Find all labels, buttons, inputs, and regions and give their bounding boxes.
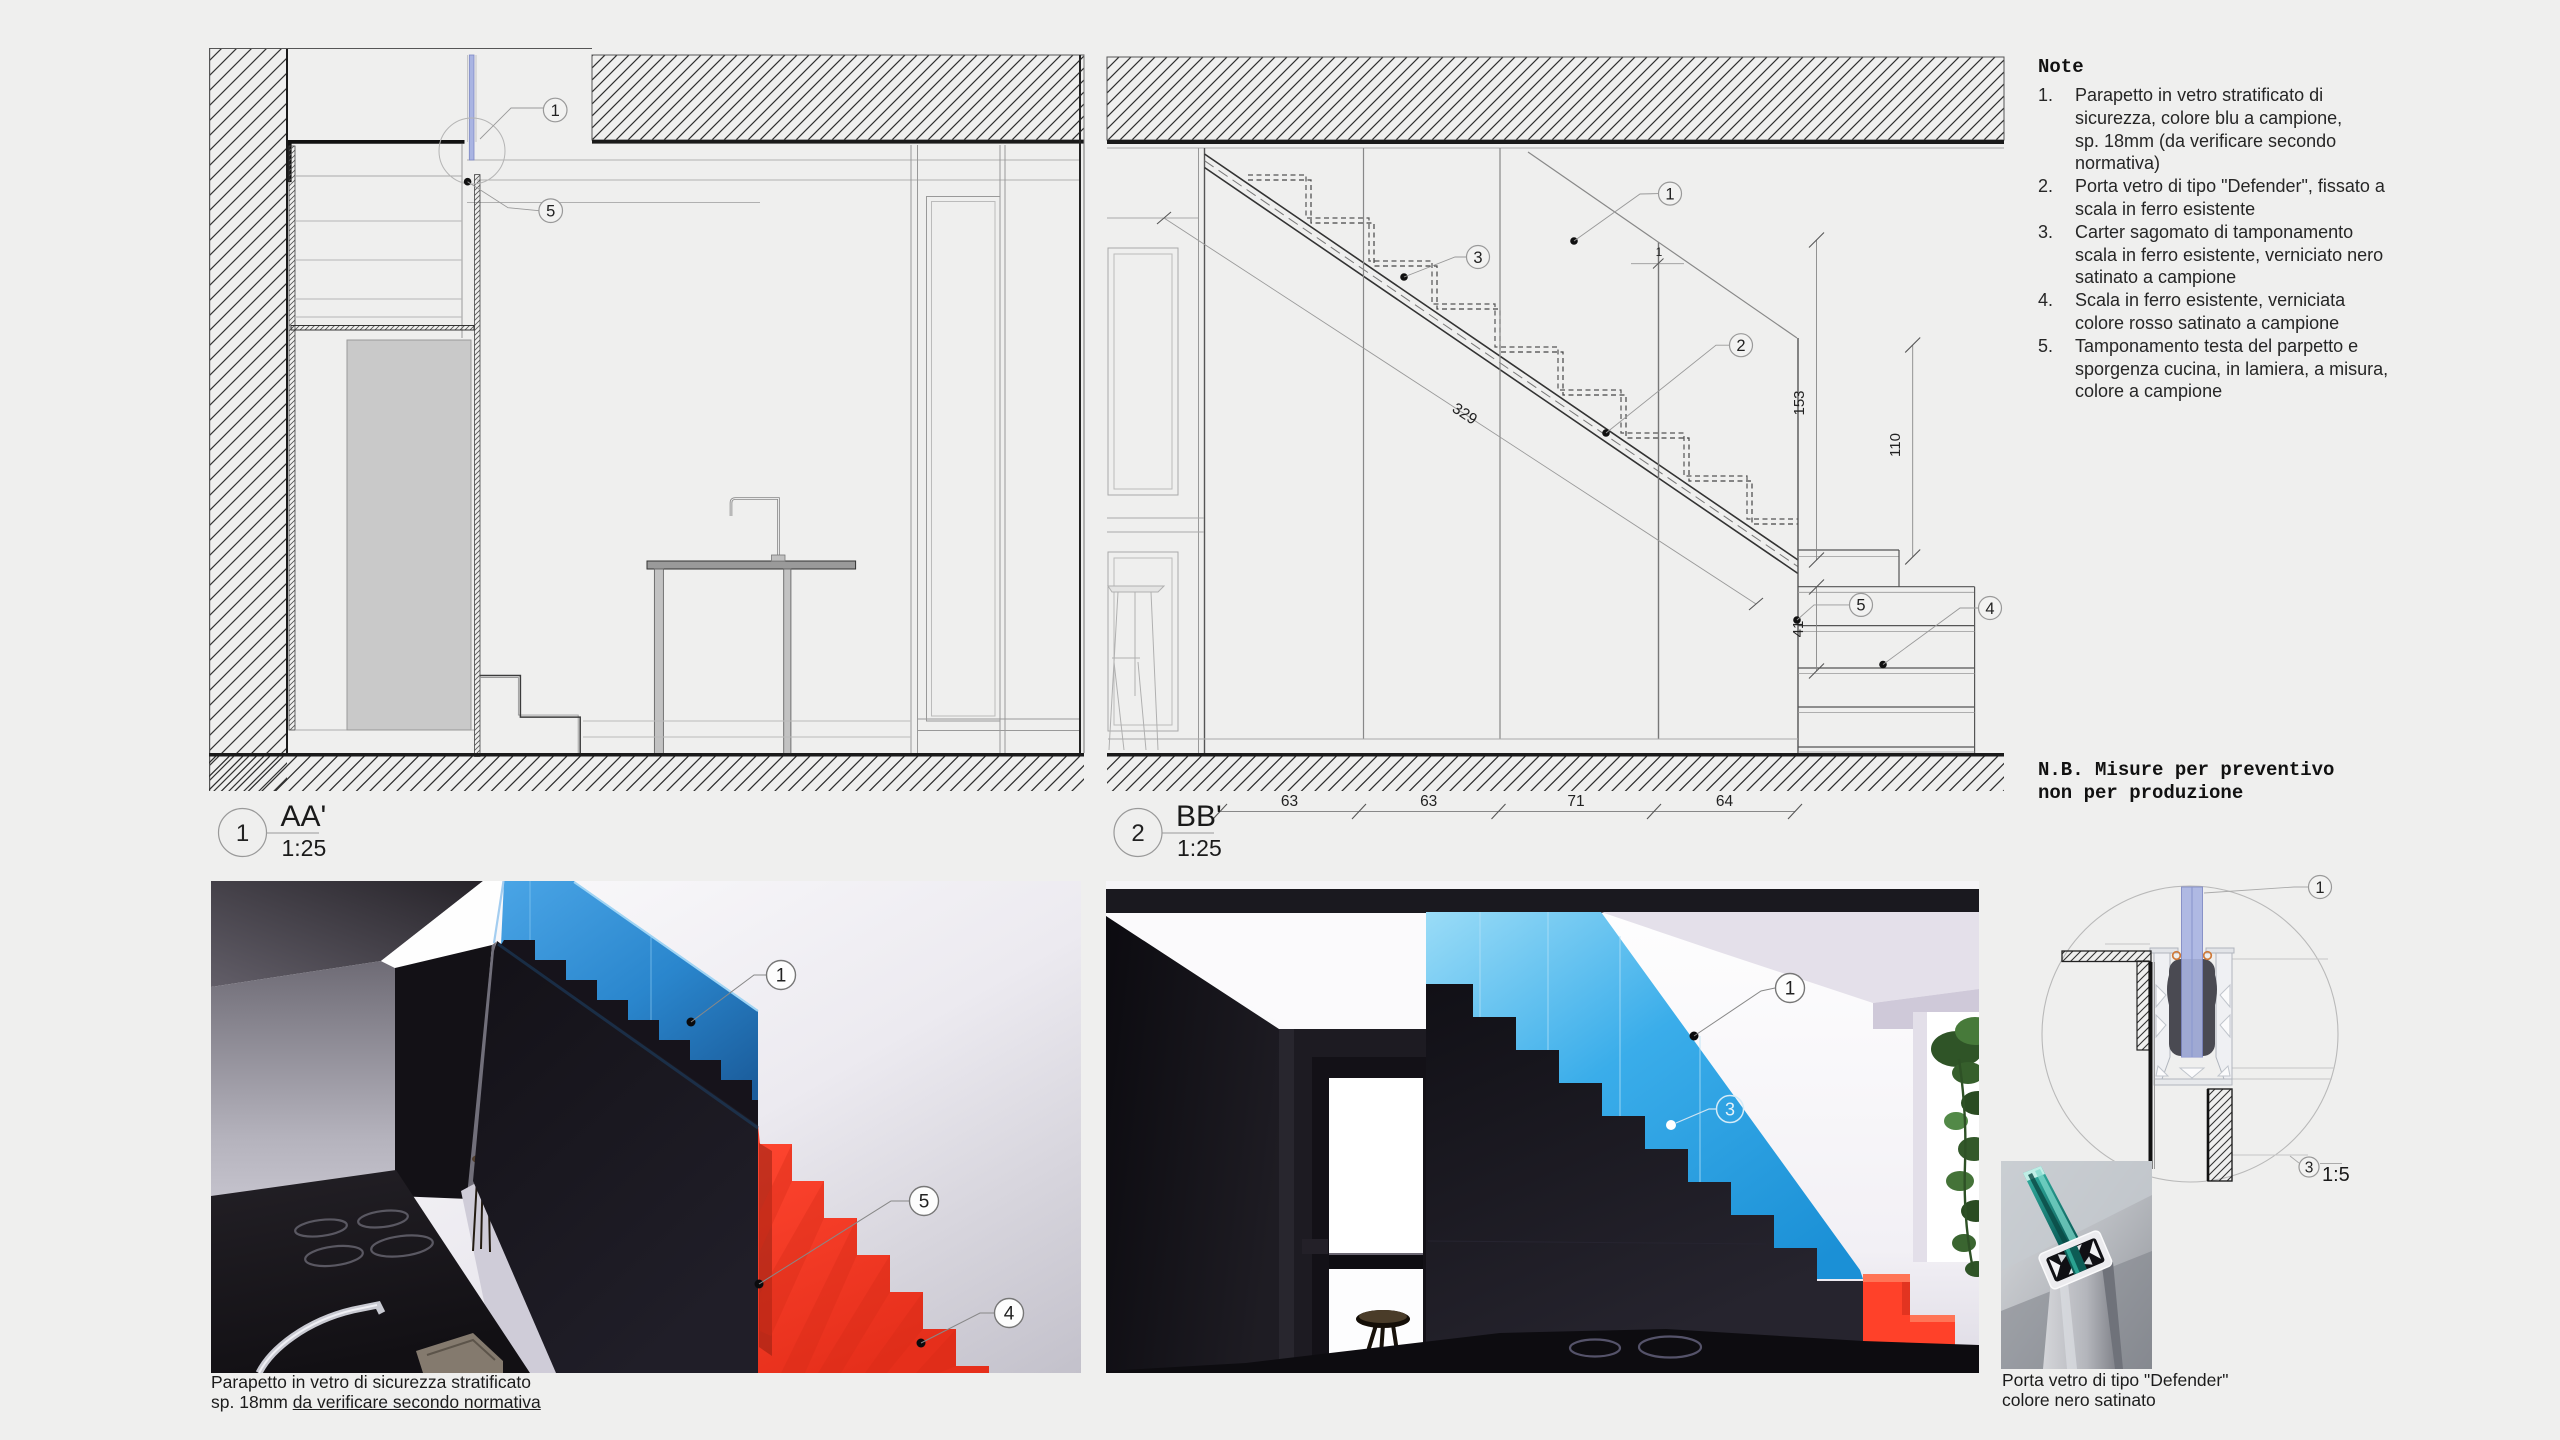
- svg-text:1: 1: [2315, 879, 2324, 897]
- svg-text:3: 3: [1473, 249, 1482, 267]
- svg-text:153: 153: [1791, 390, 1808, 415]
- svg-text:1: 1: [236, 820, 249, 847]
- svg-text:3: 3: [2305, 1160, 2314, 1177]
- svg-text:4: 4: [1004, 1304, 1015, 1325]
- svg-text:1: 1: [551, 102, 560, 120]
- svg-text:4: 4: [1985, 600, 1994, 618]
- svg-text:110: 110: [1887, 433, 1904, 457]
- svg-text:71: 71: [1567, 793, 1584, 810]
- svg-text:1:25: 1:25: [1177, 835, 1222, 861]
- svg-text:63: 63: [1420, 793, 1437, 810]
- svg-text:2: 2: [1736, 337, 1745, 355]
- svg-text:3: 3: [1725, 1100, 1735, 1120]
- svg-text:2: 2: [1131, 820, 1144, 847]
- svg-text:329: 329: [1449, 400, 1480, 428]
- svg-text:1: 1: [1785, 979, 1796, 1000]
- svg-text:5: 5: [919, 1192, 930, 1213]
- svg-text:1: 1: [776, 966, 787, 987]
- svg-text:1: 1: [1665, 185, 1674, 203]
- svg-text:AA': AA': [281, 800, 327, 833]
- svg-text:BB': BB': [1176, 800, 1222, 833]
- svg-text:64: 64: [1716, 793, 1734, 810]
- svg-text:5: 5: [1856, 597, 1865, 615]
- svg-text:5: 5: [546, 203, 555, 221]
- svg-text:1:25: 1:25: [282, 835, 327, 861]
- svg-text:63: 63: [1281, 793, 1298, 810]
- svg-text:1:5: 1:5: [2322, 1164, 2350, 1186]
- svg-text:1: 1: [1656, 245, 1663, 259]
